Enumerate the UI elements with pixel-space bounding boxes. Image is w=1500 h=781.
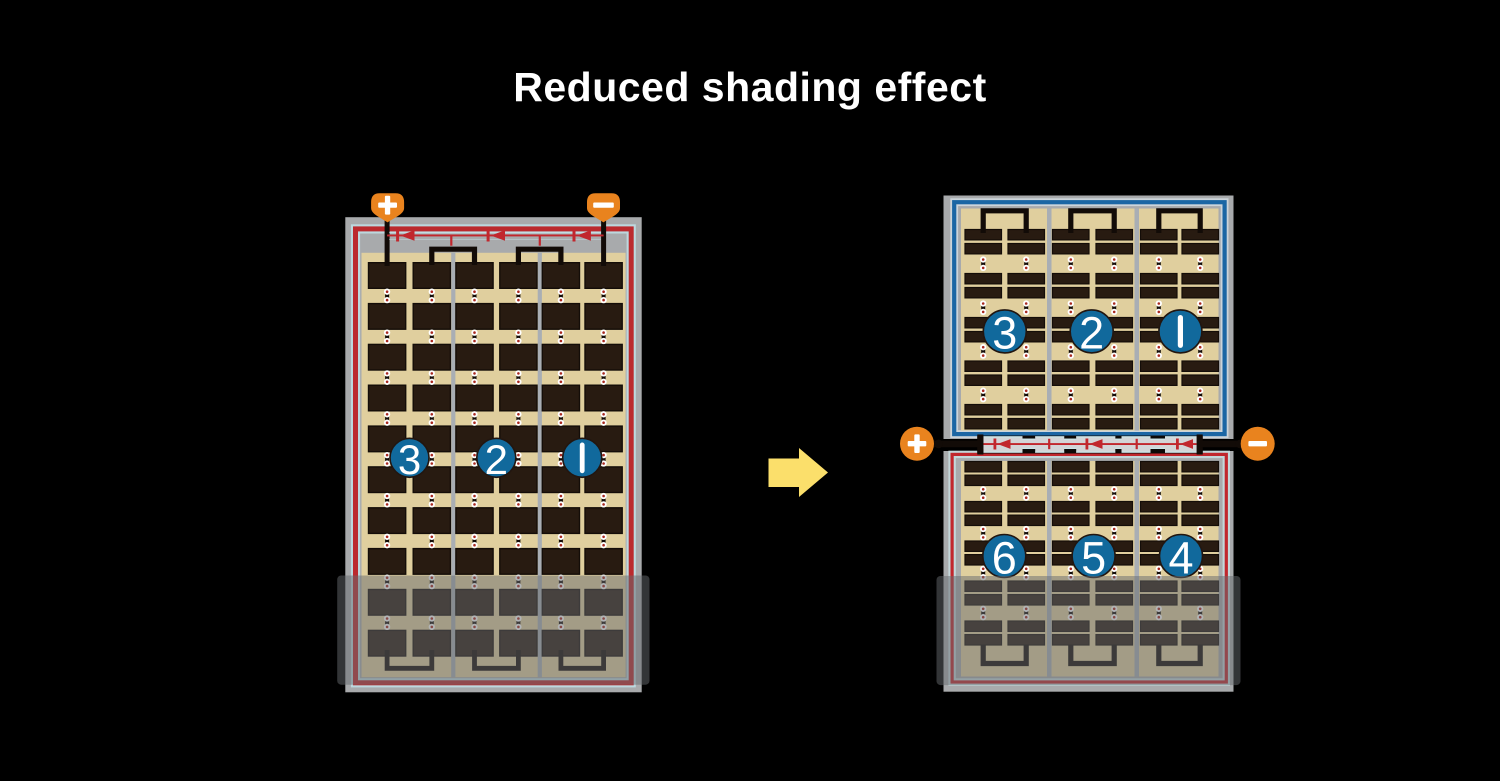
svg-text:2: 2 xyxy=(485,436,508,483)
svg-text:3: 3 xyxy=(398,436,421,483)
svg-text:5: 5 xyxy=(1081,532,1106,583)
svg-text:6: 6 xyxy=(992,532,1017,583)
svg-text:3: 3 xyxy=(992,308,1017,359)
svg-text:2: 2 xyxy=(1079,308,1104,359)
svg-text:Reduced shading effect: Reduced shading effect xyxy=(513,64,986,110)
svg-text:4: 4 xyxy=(1168,532,1193,583)
